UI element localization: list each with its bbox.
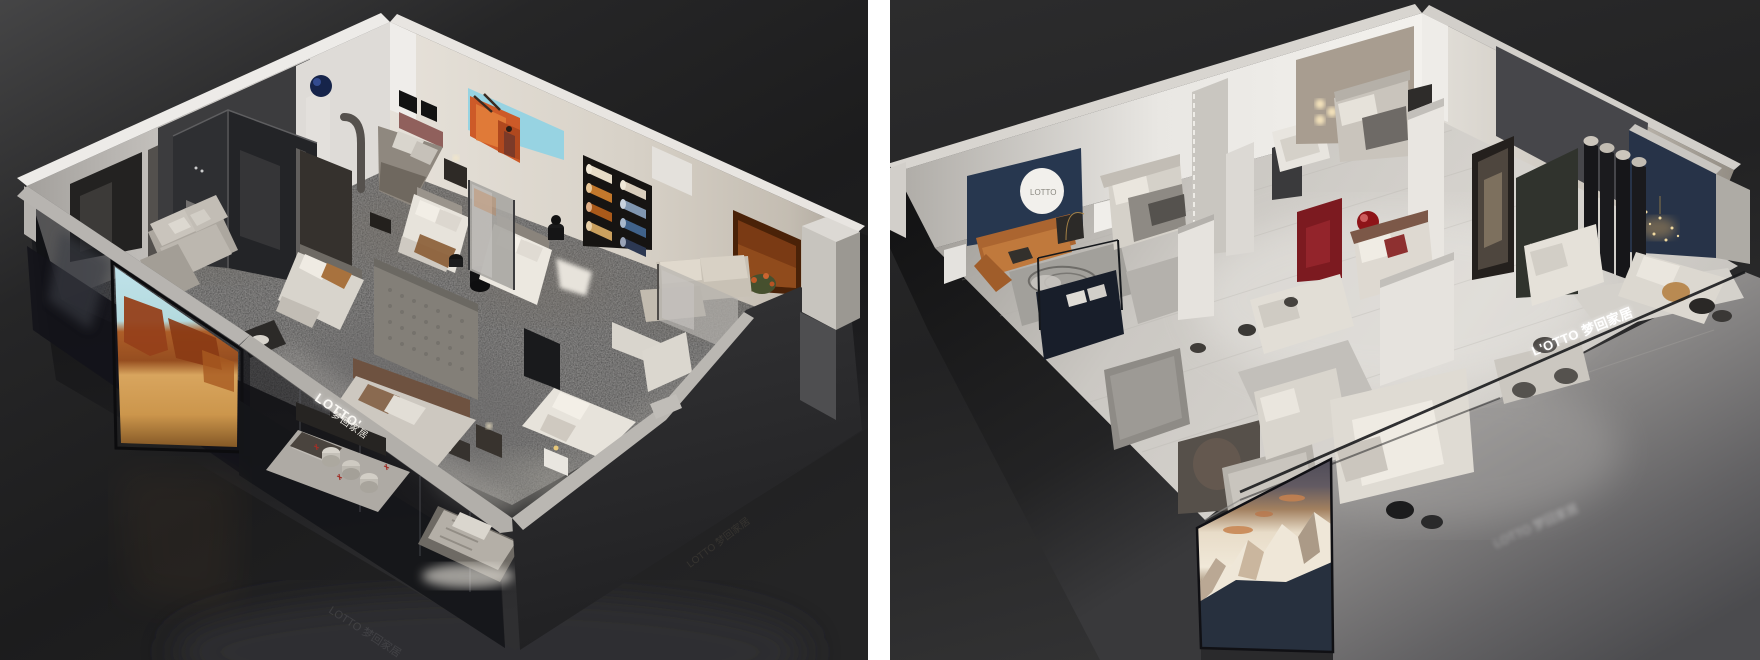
svg-text:LOTTO: LOTTO [1030,188,1057,197]
